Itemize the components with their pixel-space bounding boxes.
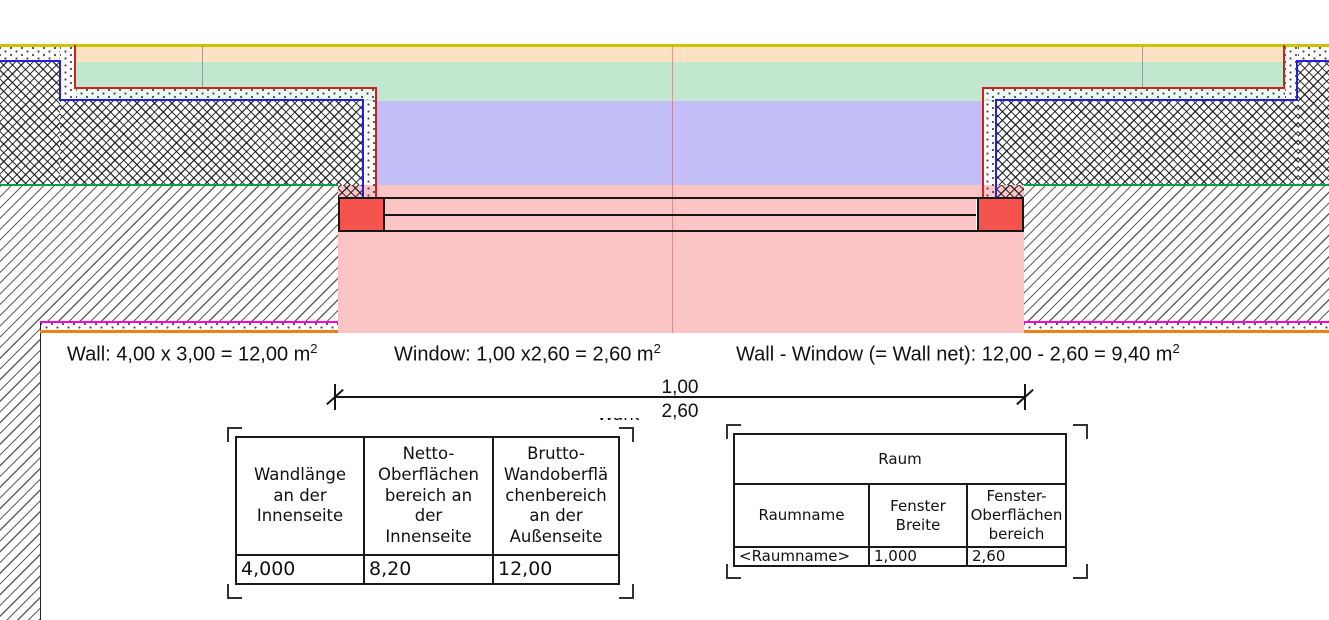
red-outline-right-reveal: [982, 87, 984, 198]
room-table-value-fensterbreite[interactable]: 1,000: [870, 548, 968, 565]
room-table-value-fensterflaeche[interactable]: 2,60: [968, 548, 1065, 565]
wall-table-header-wandlaenge: Wandlänge an der Innenseite: [237, 438, 365, 556]
right-slab-hatch: [1024, 186, 1329, 322]
window-area-sup: 2: [654, 341, 661, 356]
floor-line-green-left: [0, 184, 338, 186]
room-table-value-raumname[interactable]: <Raumname>: [735, 548, 870, 565]
room-table-header-fensterflaeche: Fenster- Oberflächen bereich: [968, 485, 1065, 548]
plaster-strip-right-reveal: [982, 100, 996, 198]
left-slab-hatch: [0, 186, 338, 322]
slab-line-orange-left: [40, 330, 338, 333]
wall-area-text: Wall: 4,00 x 3,00 = 12,00 m: [67, 344, 310, 366]
right-wall-axis-line: [1142, 46, 1143, 88]
right-wall-hatch: [996, 100, 1298, 185]
window-frame-top-line: [338, 197, 1024, 199]
wall-table-value-brutto[interactable]: 12,00: [494, 556, 618, 583]
room-table-handle-bottom-left[interactable]: [726, 564, 741, 579]
blue-outline-left-h: [59, 99, 364, 101]
plaster-strip-left-corner: [60, 47, 75, 100]
red-outline-left-reveal: [375, 87, 377, 198]
red-outline-left-v: [74, 45, 76, 89]
window-area-text: Window: 1,00 x2,60 = 2,60 m: [394, 344, 654, 366]
window-axis-line: [672, 46, 673, 333]
room-table-header-fensterbreite: Fenster Breite: [870, 485, 968, 548]
window-frame-bottom-line: [338, 230, 1024, 232]
wall-area-sup: 2: [310, 341, 317, 356]
left-slab-edge-line: [40, 322, 41, 620]
left-wall-axis-line: [202, 46, 203, 88]
blue-outline-left-top: [0, 60, 61, 62]
room-schedule-table[interactable]: Raum Raumname Fenster Breite Fenster- Ob…: [733, 433, 1067, 567]
net-wall-area-sup: 2: [1172, 341, 1179, 356]
red-outline-right-h: [982, 87, 1285, 89]
room-table-header-raumname: Raumname: [735, 485, 870, 548]
wall-table-handle-bottom-left[interactable]: [227, 584, 242, 599]
blue-outline-left-reveal: [362, 99, 364, 198]
room-table-handle-top-left[interactable]: [726, 424, 741, 439]
red-outline-left-h: [74, 87, 377, 89]
blue-outline-left-step: [59, 60, 61, 101]
slab-line-magenta-left: [40, 321, 338, 323]
left-wall-hatch-outer: [0, 62, 60, 185]
right-wall-hatch-outer: [1298, 62, 1329, 185]
wall-table-handle-top-right[interactable]: [619, 427, 634, 442]
net-wall-area-text: Wall - Window (= Wall net): 12,00 - 2,60…: [736, 344, 1172, 366]
purple-zone-band: [377, 101, 982, 185]
window-right-jamb[interactable]: [977, 197, 1024, 232]
blue-outline-right-h: [995, 99, 1298, 101]
wall-table-value-wandlaenge[interactable]: 4,000: [237, 556, 365, 583]
orange-zone-band: [76, 47, 1284, 62]
wall-table-handle-bottom-right[interactable]: [619, 584, 634, 599]
room-table-handle-bottom-right[interactable]: [1073, 564, 1088, 579]
window-glazing-line: [384, 214, 976, 216]
pink-zone-below-window: [338, 232, 1024, 333]
slab-line-magenta-right: [1024, 321, 1329, 323]
wall-table-handle-top-left[interactable]: [227, 427, 242, 442]
room-table-handle-top-right[interactable]: [1073, 424, 1088, 439]
blue-outline-right-reveal: [995, 99, 997, 198]
plaster-strip-top-left: [0, 47, 60, 61]
clipped-label-text: Wand: [597, 418, 639, 425]
dimension-label-top[interactable]: 1,00: [620, 377, 740, 399]
slab-line-orange-right: [1024, 330, 1329, 333]
blue-outline-right-step: [1296, 60, 1298, 101]
left-slab-hatch-strip: [0, 322, 40, 620]
cad-drawing-canvas: Wall: 4,00 x 3,00 = 12,00 m2 Window: 1,0…: [0, 0, 1329, 620]
red-outline-right-v: [1283, 45, 1285, 89]
wall-schedule-table[interactable]: Wandlänge an der Innenseite Netto- Oberf…: [235, 436, 620, 585]
plaster-strip-top-right: [1298, 47, 1329, 61]
window-area-formula: Window: 1,00 x2,60 = 2,60 m2: [394, 341, 661, 367]
window-left-jamb[interactable]: [338, 197, 385, 232]
wall-table-value-netto[interactable]: 8,20: [365, 556, 494, 583]
wall-area-formula: Wall: 4,00 x 3,00 = 12,00 m2: [67, 341, 318, 367]
left-wall-hatch: [60, 100, 363, 185]
room-table-title: Raum: [735, 435, 1065, 485]
net-wall-area-formula: Wall - Window (= Wall net): 12,00 - 2,60…: [736, 341, 1180, 367]
blue-outline-right-top: [1298, 60, 1329, 62]
wall-table-header-brutto: Brutto- Wandoberflä chenbereich an der A…: [494, 438, 618, 556]
wall-table-header-netto: Netto- Oberflächen bereich an der Innens…: [365, 438, 494, 556]
floor-line-green-right: [1024, 184, 1329, 186]
